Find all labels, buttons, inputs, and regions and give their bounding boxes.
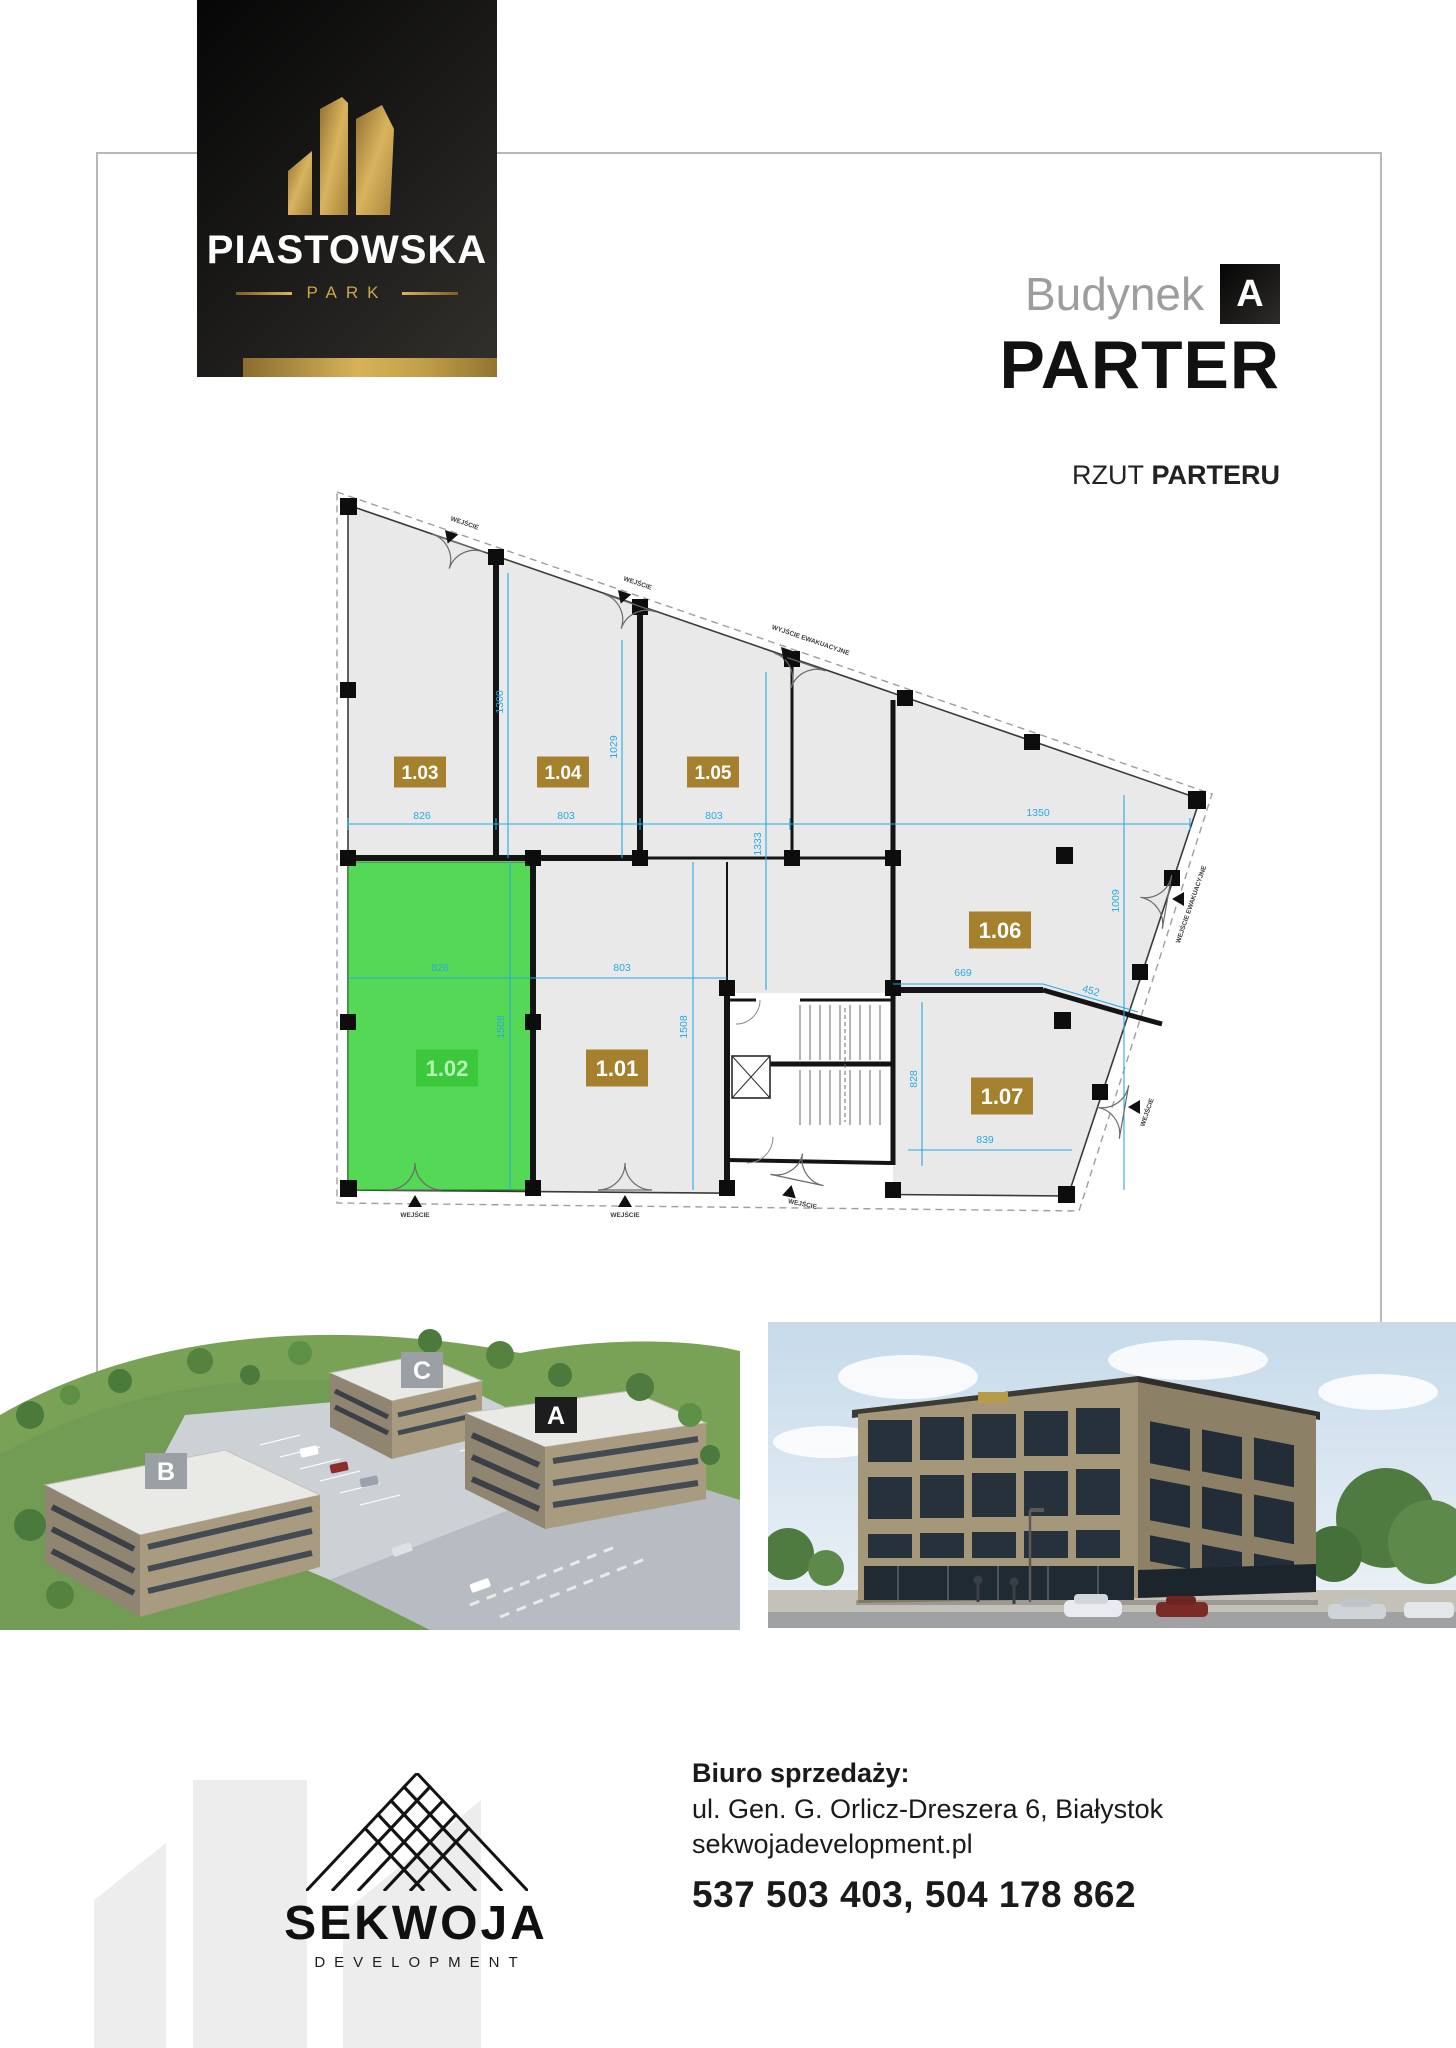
dim-label: 1508	[495, 1015, 507, 1039]
elevator	[732, 1056, 770, 1098]
frame-right	[1380, 152, 1382, 1324]
floor-title: PARTER	[999, 326, 1280, 404]
site-label-a: A	[535, 1397, 577, 1433]
entrance-arrow-icon	[408, 1195, 422, 1207]
site-label-c: C	[401, 1352, 443, 1388]
dim-label: 1029	[608, 735, 620, 759]
contact-block: Biuro sprzedaży: ul. Gen. G. Orlicz-Dres…	[692, 1756, 1163, 1920]
sales-office-heading: Biuro sprzedaży:	[692, 1756, 1163, 1792]
brochure-page: PIASTOWSKA PARK Budynek A PARTER RZUT PA…	[0, 0, 1456, 2048]
brand-park: PARK	[306, 283, 387, 303]
svg-text:1.06: 1.06	[979, 918, 1022, 943]
brand-park-row: PARK	[197, 283, 497, 303]
entrance-label: WEJŚCIE	[400, 1210, 430, 1219]
sales-phone-numbers[interactable]: 537 503 403, 504 178 862	[692, 1871, 1163, 1920]
title-block: Budynek A PARTER RZUT PARTERU	[999, 264, 1280, 491]
developer-subtitle: DEVELOPMENT	[266, 1954, 566, 1971]
svg-text:1.04: 1.04	[545, 763, 582, 784]
aerial-photo: B C A	[0, 1295, 740, 1630]
plan-subtitle: RZUT PARTERU	[1072, 460, 1280, 491]
brand-logo-box: PIASTOWSKA PARK	[197, 0, 497, 377]
sekwoja-logo-icon	[306, 1773, 528, 1891]
dim-label: 1350	[1026, 807, 1050, 819]
svg-text:1.01: 1.01	[596, 1056, 639, 1081]
facade-logo	[978, 1392, 1008, 1403]
building-label: Budynek	[1025, 267, 1204, 321]
unit-chip-1-07: 1.07	[971, 1078, 1033, 1115]
entrance-arrow-icon	[618, 1195, 632, 1207]
gold-line-right	[402, 292, 458, 295]
gold-line-left	[236, 292, 292, 295]
unit-chip-1-05: 1.05	[687, 757, 739, 788]
sales-office-address: ul. Gen. G. Orlicz-Dreszera 6, Białystok	[692, 1792, 1163, 1828]
entrance-arrow-icon	[1128, 1100, 1140, 1114]
floor-plan: 1.031.041.051.061.021.011.07826803803135…	[300, 490, 1260, 1260]
unit-chip-1-04: 1.04	[537, 757, 589, 788]
dim-label: 1508	[678, 1015, 690, 1039]
entrance-label: WEJŚCIE	[1138, 1096, 1156, 1127]
dim-label: 1333	[752, 832, 764, 856]
site-label-b: B	[145, 1453, 187, 1489]
dim-label: 828	[908, 1070, 920, 1088]
dim-label: 826	[431, 962, 449, 974]
svg-text:1.02: 1.02	[426, 1056, 469, 1081]
dim-label: 803	[613, 962, 631, 974]
dim-label: 839	[976, 1134, 994, 1146]
entrance-label: WEJŚCIE	[623, 574, 654, 592]
unit-chip-1-06: 1.06	[969, 912, 1031, 949]
svg-text:C: C	[413, 1357, 431, 1385]
developer-website[interactable]: sekwojadevelopment.pl	[692, 1827, 1163, 1863]
developer-name: SEKWOJA	[266, 1896, 566, 1951]
dim-label: 826	[413, 810, 431, 822]
dim-label: 803	[705, 810, 723, 822]
building-letter-badge: A	[1220, 264, 1280, 324]
gold-bottom-bar	[243, 358, 497, 377]
brand-name: PIASTOWSKA	[197, 228, 497, 273]
svg-text:1.07: 1.07	[981, 1084, 1024, 1109]
svg-text:A: A	[547, 1402, 565, 1430]
dim-label: 803	[557, 810, 575, 822]
core-recess	[727, 1160, 893, 1199]
unit-chip-1-01: 1.01	[586, 1050, 648, 1087]
office-building	[852, 1376, 1320, 1605]
street-photo	[768, 1322, 1456, 1628]
brand-buildings-icon	[284, 92, 414, 217]
entrance-label: WEJŚCIE	[610, 1210, 640, 1219]
dim-label: 1300	[494, 690, 506, 714]
frame-left	[96, 152, 98, 1447]
svg-text:1.05: 1.05	[695, 763, 732, 784]
unit-chip-1-02: 1.02	[416, 1050, 478, 1087]
svg-text:B: B	[157, 1458, 175, 1486]
dim-label: 669	[954, 967, 972, 979]
entrance-arrow-icon	[1172, 892, 1184, 906]
entrance-label: WEJŚCIE	[450, 514, 481, 532]
svg-text:1.03: 1.03	[402, 763, 439, 784]
unit-chip-1-03: 1.03	[394, 757, 446, 788]
dim-label: 1009	[1110, 889, 1122, 913]
